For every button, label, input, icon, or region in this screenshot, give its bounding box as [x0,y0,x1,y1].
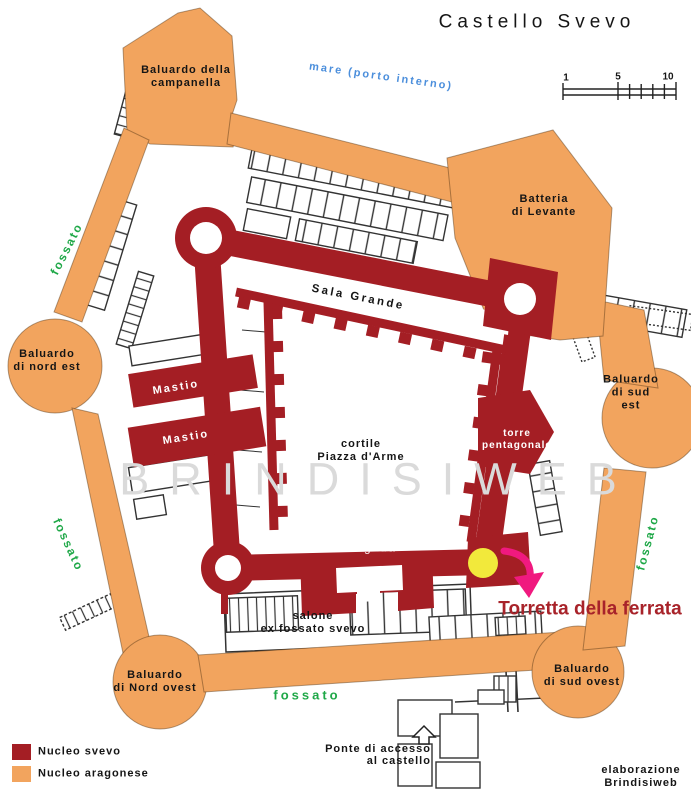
torretta-marker [468,548,498,578]
tower-southwest-hole [215,555,241,581]
castle-map: BRINDISIWEB Castello Svevo mare (porto i… [0,0,691,790]
tower-northwest-hole [190,222,222,254]
legend-swatch-svevo [12,744,31,760]
castle-plan-svg [0,0,691,790]
scale-bar [563,82,676,100]
west-buildings-2 [116,271,154,348]
east-wall-band-lower [583,468,646,650]
legend-swatch-aragonese [12,766,31,782]
northwest-stairs [60,594,117,630]
southeast-range [528,461,562,536]
southwest-stub [221,588,228,614]
west-range-room-1 [129,334,207,366]
tower-northeast-hole [504,283,536,315]
west-range-room-3 [134,495,167,519]
west-buttresses [277,308,283,522]
bastion-nord-ovest-shape [113,635,207,729]
bastion-campanella-shape [123,8,240,147]
courtyard-west-wall [268,302,274,530]
bastion-nord-est-shape [8,319,102,413]
